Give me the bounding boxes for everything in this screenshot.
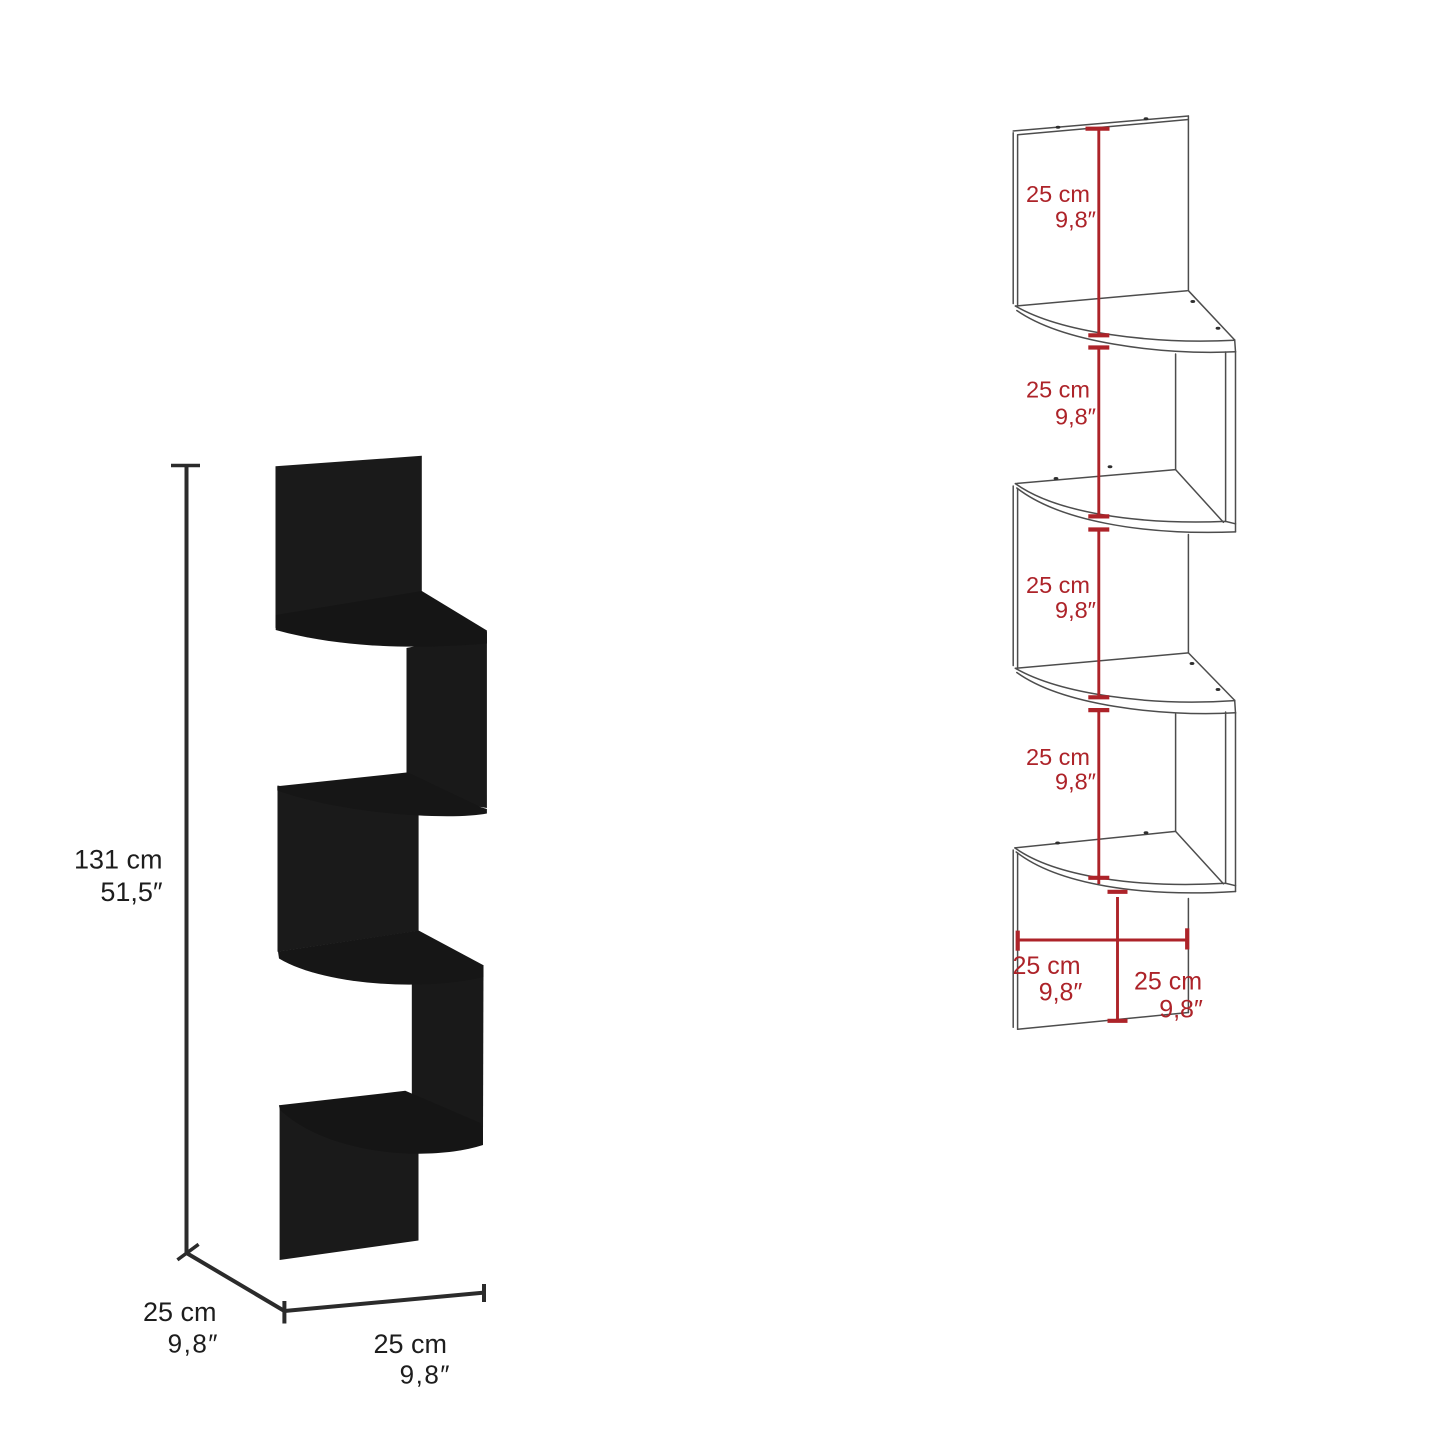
svg-text:51,5″: 51,5″ — [100, 877, 163, 907]
svg-text:25 cm: 25 cm — [1134, 968, 1202, 996]
svg-text:9,8″: 9,8″ — [1055, 207, 1096, 233]
svg-text:25 cm: 25 cm — [1026, 572, 1090, 598]
svg-text:131 cm: 131 cm — [74, 845, 163, 875]
svg-text:25 cm: 25 cm — [373, 1329, 447, 1359]
svg-text:9,8″: 9,8″ — [1055, 404, 1096, 430]
svg-text:25 cm: 25 cm — [1026, 181, 1090, 207]
svg-text:9,8″: 9,8″ — [1159, 996, 1203, 1024]
svg-text:9,8″: 9,8″ — [1055, 769, 1096, 795]
svg-text:9,8″: 9,8″ — [1055, 597, 1096, 623]
svg-text:9,8″: 9,8″ — [1039, 979, 1083, 1007]
svg-text:25 cm: 25 cm — [1026, 744, 1090, 770]
svg-text:25 cm: 25 cm — [1026, 377, 1090, 403]
svg-text:9,8″: 9,8″ — [400, 1360, 451, 1390]
svg-text:25 cm: 25 cm — [1012, 952, 1080, 980]
svg-text:9,8″: 9,8″ — [168, 1329, 219, 1359]
svg-text:25 cm: 25 cm — [143, 1297, 217, 1327]
